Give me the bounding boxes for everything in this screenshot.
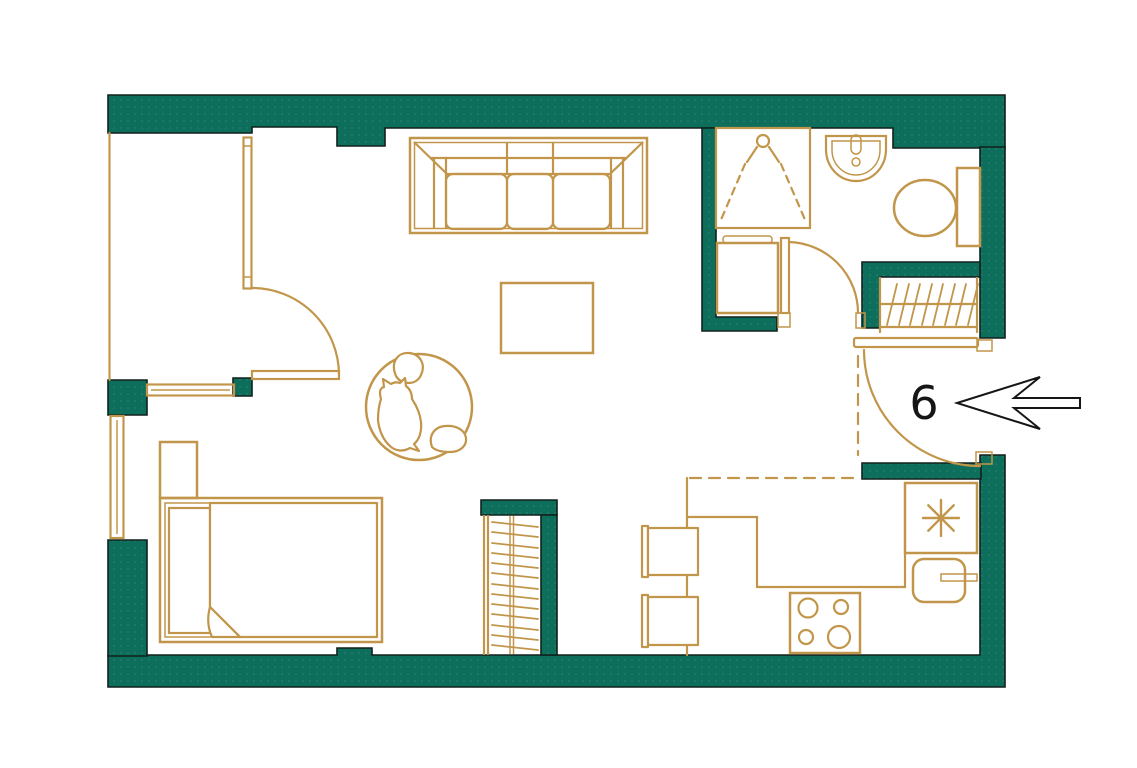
wardrobe — [484, 516, 538, 654]
cat-tail — [394, 353, 423, 383]
entrance-door-leaf — [854, 338, 978, 347]
stove — [790, 593, 860, 653]
double-bed — [160, 498, 382, 642]
faucet-icon — [941, 574, 977, 581]
balcony-door-leaf — [252, 371, 339, 379]
sofa-seat-cushion — [553, 174, 610, 229]
window-vertical — [111, 416, 124, 538]
nightstand — [160, 442, 197, 498]
duvet — [210, 503, 377, 637]
unit-number: 6 — [909, 376, 938, 430]
shower-head-icon — [757, 135, 769, 147]
bathroom-door-swing — [789, 242, 858, 313]
snowflake-icon — [923, 500, 959, 536]
pillow — [169, 508, 210, 633]
cat-body — [378, 378, 421, 451]
washbasin — [826, 135, 886, 181]
floor-plan-canvas: 6 — [0, 0, 1137, 768]
faucet-icon — [851, 135, 861, 154]
coat-rack — [880, 278, 978, 332]
wardrobe-hangers — [492, 522, 538, 650]
fridge — [905, 483, 977, 553]
chair — [642, 526, 698, 577]
cat-paws — [431, 426, 466, 452]
wall-left-pier — [108, 380, 147, 415]
burner-icon — [828, 626, 850, 648]
wall-wardrobe-side — [541, 515, 557, 655]
chair — [642, 595, 698, 647]
wall-left-lower — [108, 540, 147, 656]
sofa — [410, 138, 647, 233]
sofa-seat-cushion — [446, 174, 507, 229]
burner-icon — [799, 630, 813, 644]
wall-bathroom-left — [702, 128, 777, 331]
washing-machine — [717, 236, 778, 313]
floor-plan: 6 — [0, 0, 1137, 768]
burner-icon — [799, 599, 818, 618]
balcony-partition — [244, 138, 252, 289]
wardrobe-rail — [510, 516, 514, 654]
entrance-annotation: 6 — [909, 376, 1080, 430]
dining-table — [687, 517, 905, 587]
kitchen-sink — [913, 559, 977, 602]
toilet — [894, 168, 980, 246]
balcony-door — [252, 288, 339, 379]
bathroom-door — [778, 238, 858, 327]
wall-right-upper — [980, 147, 1005, 338]
balcony-door-swing — [252, 288, 339, 375]
kitchen — [642, 478, 977, 655]
shower — [716, 128, 810, 228]
burner-icon — [834, 600, 848, 614]
wall-window-pier — [233, 378, 252, 396]
toilet-cistern — [957, 168, 980, 246]
entrance-arrow-icon — [957, 377, 1080, 429]
bathroom-door-leaf — [781, 238, 789, 313]
sofa-seat-cushion — [507, 174, 553, 229]
window-horizontal — [147, 385, 234, 396]
wall-wardrobe-top — [481, 500, 557, 515]
toilet-bowl — [894, 180, 956, 236]
coffee-table — [501, 283, 593, 353]
